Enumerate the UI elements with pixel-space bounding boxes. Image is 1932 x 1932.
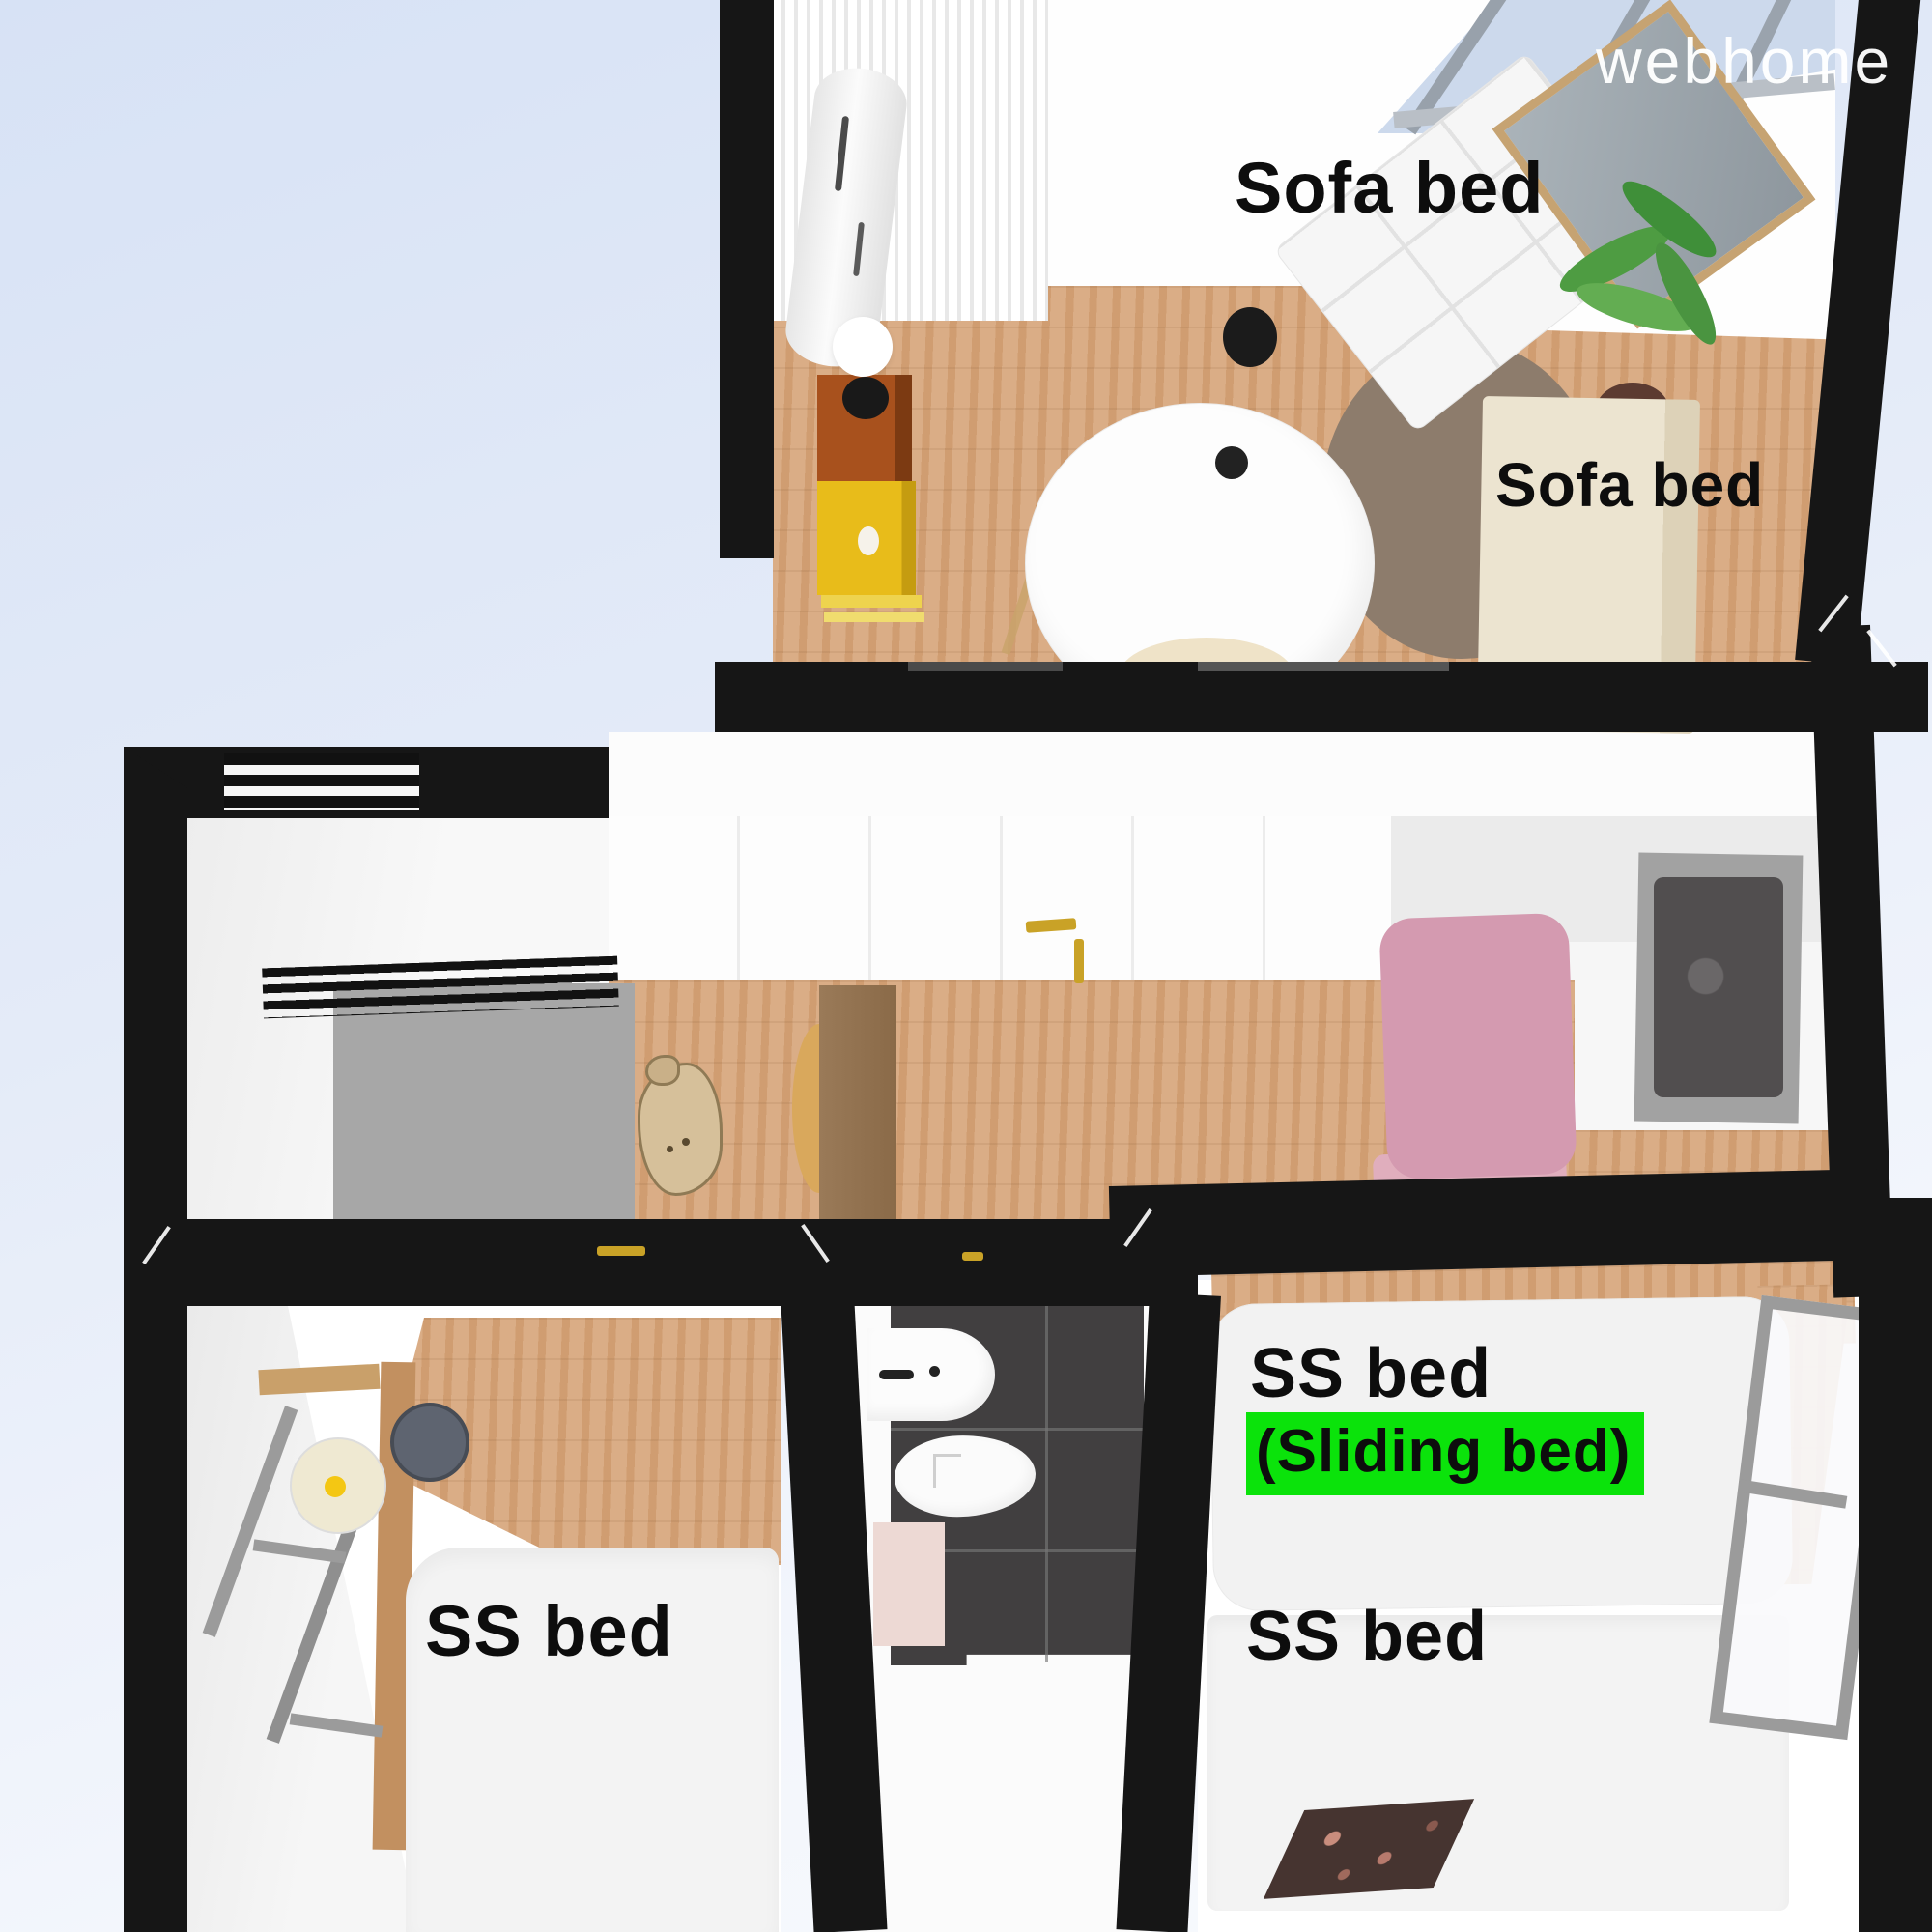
pendant-lamp-dot bbox=[1223, 307, 1277, 367]
wall-corridor-bottom bbox=[124, 1219, 1198, 1306]
door-handle-gold bbox=[597, 1246, 645, 1256]
cabinet-knob bbox=[858, 526, 879, 555]
label-sliding-bed-highlight: (Sliding bed) bbox=[1246, 1412, 1644, 1495]
toilet-hinge-line bbox=[933, 1454, 961, 1488]
tile-grout-line bbox=[1045, 1306, 1048, 1662]
dog-eye bbox=[667, 1146, 673, 1152]
dog-eye bbox=[682, 1138, 690, 1146]
wall-bedroom-right-side bbox=[1859, 1198, 1932, 1932]
tile-grout-line bbox=[891, 1428, 1144, 1431]
wall-living-bottom bbox=[715, 662, 1928, 732]
heater-cap bbox=[842, 377, 889, 419]
door-handle-gold bbox=[962, 1252, 983, 1261]
label-ss-bed-left: SS bed bbox=[425, 1596, 673, 1667]
label-ss-bed-second: SS bed bbox=[1246, 1602, 1488, 1671]
bath-mat-pink bbox=[873, 1522, 945, 1646]
stove-cooktop-glass bbox=[1654, 877, 1783, 1097]
cabinet-stripe bbox=[821, 595, 922, 608]
sink-drain-slit bbox=[879, 1370, 914, 1379]
label-sofa-bed-side: Sofa bed bbox=[1495, 454, 1764, 516]
label-sofa-bed-top: Sofa bed bbox=[1235, 153, 1544, 224]
label-ss-bed-sliding: SS bed bbox=[1250, 1339, 1492, 1408]
console-table bbox=[819, 985, 896, 1219]
window-blinds bbox=[224, 753, 419, 810]
wall-living-left bbox=[720, 0, 774, 558]
sink-faucet-dot bbox=[929, 1366, 940, 1377]
gray-mat bbox=[333, 983, 635, 1219]
table-vase bbox=[1215, 446, 1248, 479]
door-threshold bbox=[908, 662, 1063, 671]
door-handle-gold bbox=[1074, 939, 1084, 983]
floor-plan-screenshot: Sofa bed Sofa bed bbox=[0, 0, 1932, 1932]
cabinet-stripe bbox=[824, 612, 924, 622]
stool-dark bbox=[390, 1403, 469, 1482]
watermark: webhome bbox=[1596, 29, 1892, 93]
door-threshold bbox=[1198, 662, 1449, 671]
wall-bedroom-right-top bbox=[1109, 1169, 1879, 1277]
closet-doors bbox=[609, 816, 1391, 980]
heater-ball bbox=[833, 317, 893, 377]
wall-left-outer bbox=[124, 747, 187, 1932]
desk-lamp-bulb bbox=[325, 1476, 346, 1497]
pink-chair-back bbox=[1378, 913, 1577, 1180]
dog-ear bbox=[645, 1055, 680, 1086]
